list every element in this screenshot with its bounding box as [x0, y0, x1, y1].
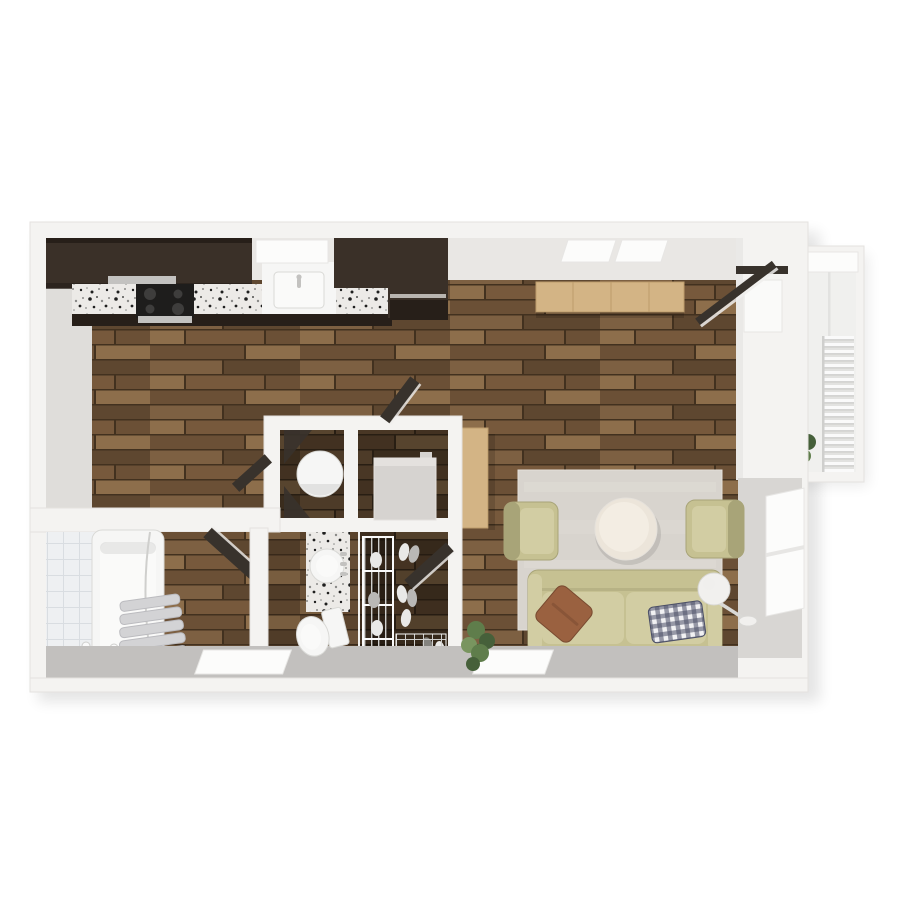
rug-streak	[524, 482, 716, 492]
utility-room-right	[358, 430, 448, 520]
sideboard-shadow	[536, 312, 684, 318]
floorplan-svg	[0, 0, 900, 900]
top-window-pane-right	[615, 240, 668, 262]
sideboard-grain	[610, 282, 612, 312]
sideboard-grain	[648, 282, 650, 312]
pillow-checkered-body	[648, 600, 706, 643]
balcony-divider	[828, 272, 831, 338]
console-desk	[462, 428, 495, 530]
floor-lamp-globe	[698, 573, 730, 605]
armchair-left	[504, 502, 558, 560]
burner	[146, 305, 155, 314]
wire-shelf-rail	[362, 536, 394, 538]
plant-leaves	[466, 657, 480, 671]
balcony-partition-shade	[736, 238, 743, 480]
bathroom-top-wall	[30, 508, 280, 532]
armchair-left-cushion	[520, 508, 554, 554]
floor-lamp-highlight	[703, 578, 715, 590]
armchair-left-back	[504, 502, 520, 560]
bottom-wall-face	[46, 646, 738, 678]
sink-faucet-stem	[297, 278, 301, 288]
console-desk-shadow	[488, 434, 495, 530]
wire-shelf-rail	[362, 638, 394, 640]
armchair-right-back	[728, 500, 744, 558]
sofa	[528, 570, 722, 658]
kitchen-window	[256, 240, 328, 263]
cooktop	[136, 284, 194, 323]
burner	[174, 290, 183, 299]
kitchen-counter-front	[72, 314, 392, 326]
shoe	[368, 592, 380, 608]
utility-room-left	[280, 430, 344, 518]
armchair-right	[686, 500, 744, 558]
range-hood	[108, 276, 176, 284]
kitchen-cabinet-top-edge	[46, 238, 252, 243]
burner	[172, 303, 184, 315]
burner	[144, 288, 156, 300]
coffee-table-highlight	[599, 502, 649, 552]
pillow-checkered	[648, 600, 706, 643]
balcony-railing-edge	[822, 336, 825, 472]
balcony-railing-slats	[824, 336, 854, 472]
living-room	[504, 470, 757, 658]
floor-lamp-base	[739, 616, 757, 626]
refrigerator-shadow	[390, 300, 448, 320]
oven-handle	[138, 316, 192, 323]
appliance-top-edge	[374, 458, 436, 466]
bottom-window-left	[195, 650, 292, 674]
right-wall-window	[766, 488, 804, 616]
vanity-faucet	[340, 572, 347, 576]
kitchen-sink	[262, 262, 336, 314]
appliance-box	[374, 458, 436, 520]
wire-shelf-rail	[362, 570, 394, 572]
top-window-pane-left	[561, 240, 616, 262]
shoe	[370, 552, 382, 568]
refrigerator-highlight	[390, 294, 446, 298]
kitchen	[46, 238, 448, 326]
armchair-right-cushion	[692, 506, 726, 552]
bottom-outer-wall	[30, 678, 808, 692]
sideboard-grain	[572, 282, 574, 312]
vanity-faucet	[340, 552, 347, 556]
shoe	[371, 620, 383, 636]
vanity-sink-basin	[316, 555, 338, 577]
console-desk-top	[462, 428, 488, 528]
floorplan-render	[0, 0, 900, 900]
sideboard	[536, 282, 684, 318]
kitchen-countertop	[72, 284, 392, 318]
vanity-faucet	[340, 562, 347, 566]
